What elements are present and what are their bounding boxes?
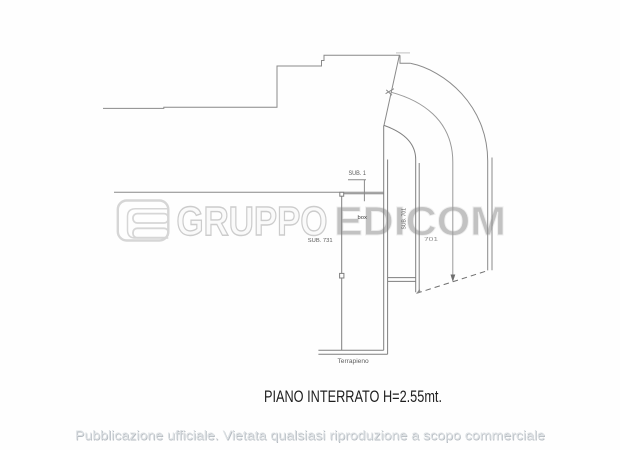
svg-text:GRUPPO: GRUPPO	[177, 198, 328, 244]
svg-text:PIANO INTERRATO H=2.55mt.: PIANO INTERRATO H=2.55mt.	[264, 388, 442, 406]
svg-text:Pubblicazione ufficiale. Vieta: Pubblicazione ufficiale. Vietata qualsia…	[75, 428, 545, 443]
svg-text:Terrapieno: Terrapieno	[338, 358, 369, 365]
svg-text:SUB. 731: SUB. 731	[308, 238, 333, 244]
svg-text:EDICOM: EDICOM	[334, 198, 506, 244]
svg-text:SUB. 701: SUB. 701	[401, 208, 407, 230]
svg-text:box: box	[358, 215, 367, 221]
svg-text:701: 701	[424, 237, 438, 243]
svg-text:SUB. 1: SUB. 1	[349, 170, 367, 177]
